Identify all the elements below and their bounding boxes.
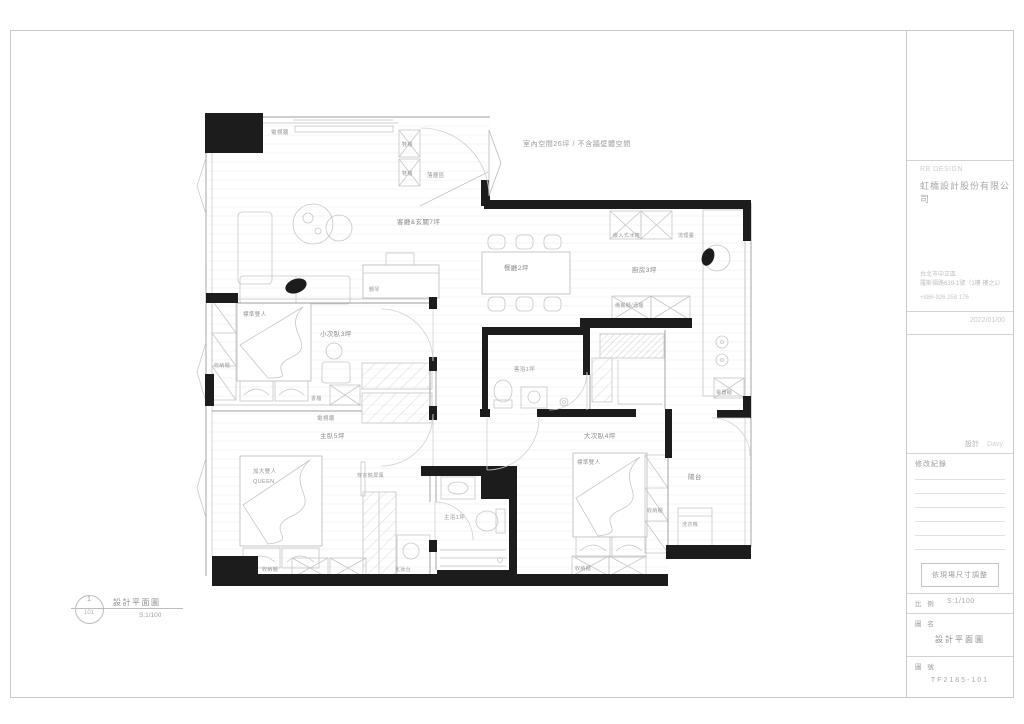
designer-row: 設計Davy	[965, 439, 1003, 449]
brand-logo-text: RB DESIGN	[920, 166, 963, 173]
company-address: 台北市中正區 羅斯福路639-1號（1樓 樓之1）	[920, 271, 1004, 289]
site-note: 依現場尺寸調整	[921, 563, 999, 587]
scale-label: 比 例	[915, 598, 936, 608]
drawing-date: 2022/01/00	[970, 317, 1005, 324]
company-name: 虹橋設計股份有限公司	[920, 179, 1013, 205]
drawing-number: TF2185-101	[907, 677, 1013, 684]
name-label: 圖 名	[915, 618, 936, 628]
scale-value: S:1/100	[947, 598, 975, 605]
view-legend: 1 101 設計平面圖 S:1/100	[75, 595, 215, 641]
view-sheet: 101	[75, 610, 103, 616]
company-phone: +886-926 258 176	[920, 295, 969, 301]
drawing-name: 設計平面圖	[907, 634, 1013, 645]
view-title: 設計平面圖	[113, 597, 161, 608]
number-label: 圖 號	[915, 661, 936, 671]
revision-label: 修改紀錄	[915, 459, 947, 469]
view-scale: S:1/100	[139, 612, 161, 619]
view-number: 1	[75, 596, 103, 603]
title-block: RB DESIGN 虹橋設計股份有限公司 台北市中正區 羅斯福路639-1號（1…	[906, 31, 1013, 697]
drawing-sheet: 室內空間26坪 / 不含牆壁體空間 客廳&玄關7坪 餐廳2坪 廚房3坪 落塵區 …	[0, 0, 1024, 724]
